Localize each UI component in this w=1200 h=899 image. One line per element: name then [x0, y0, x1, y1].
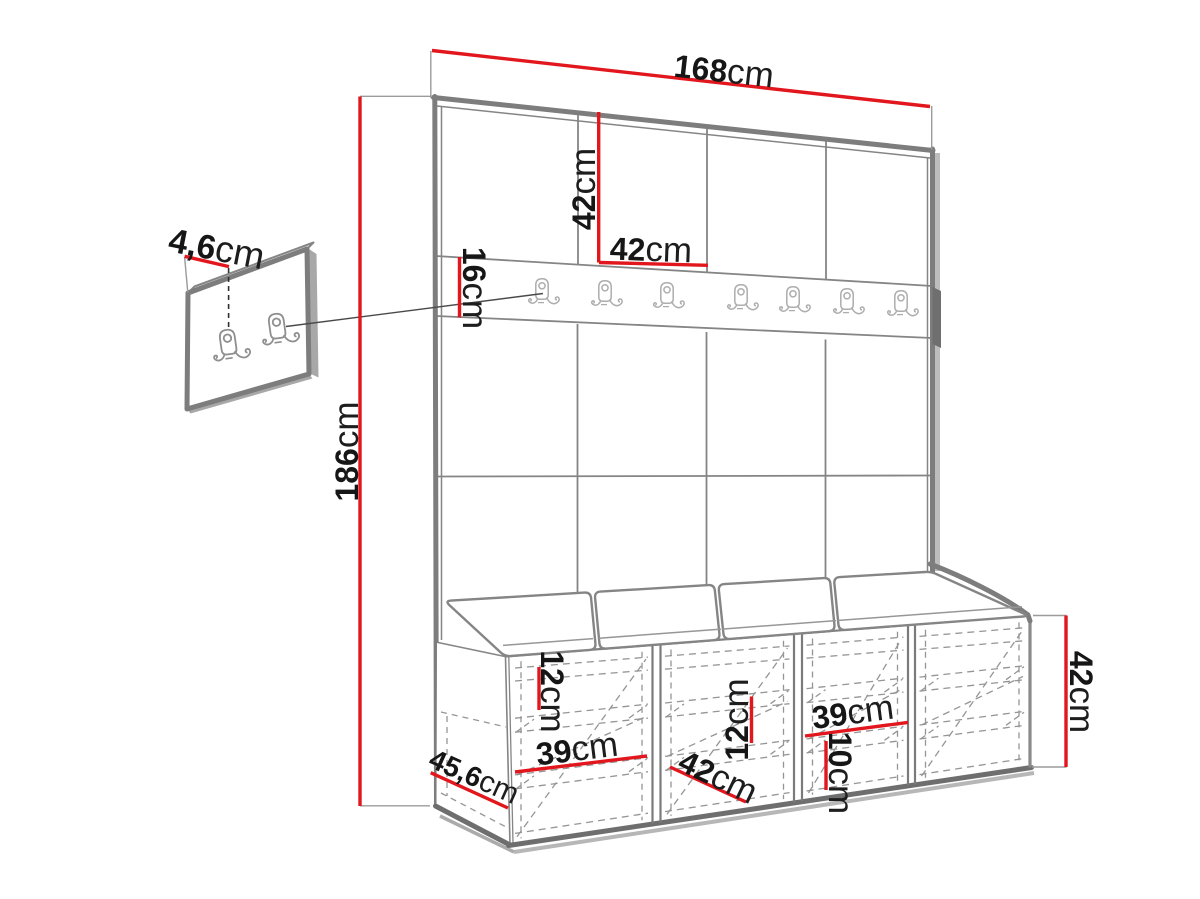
svg-text:42cm: 42cm — [609, 229, 693, 271]
svg-text:10cm: 10cm — [821, 732, 860, 814]
svg-text:186cm: 186cm — [327, 401, 366, 501]
svg-text:42cm: 42cm — [1062, 651, 1101, 733]
svg-text:12cm: 12cm — [533, 650, 572, 732]
svg-text:12cm: 12cm — [717, 678, 756, 760]
svg-text:16cm: 16cm — [455, 247, 494, 329]
svg-text:42cm: 42cm — [564, 148, 603, 230]
